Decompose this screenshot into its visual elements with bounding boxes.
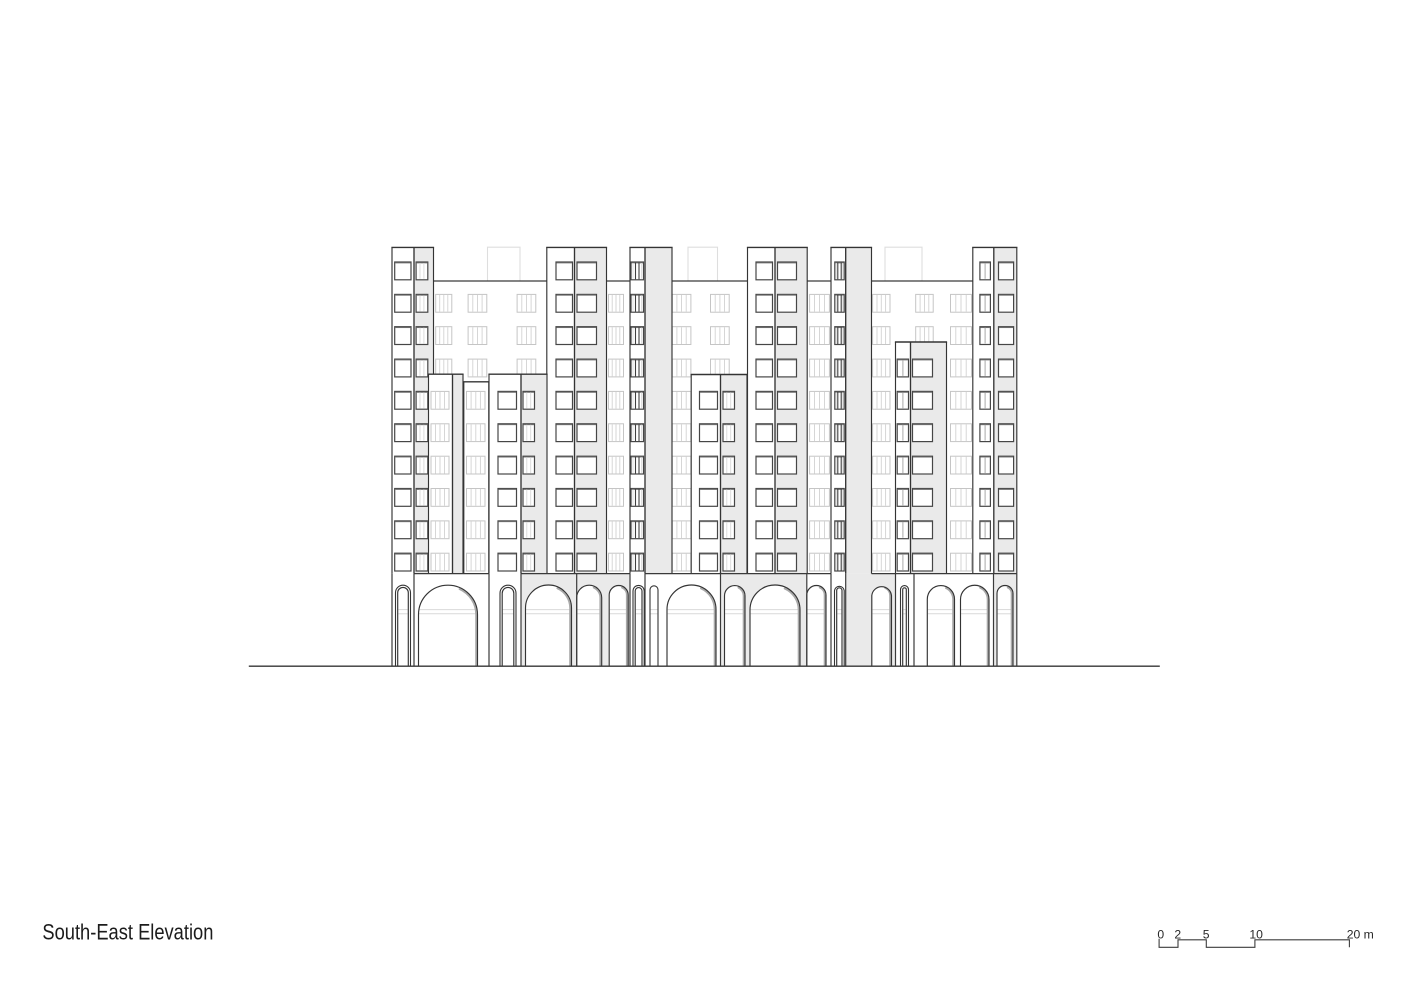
- svg-text:0: 0: [1157, 927, 1164, 941]
- svg-text:South-East Elevation: South-East Elevation: [42, 920, 213, 945]
- svg-text:20 m: 20 m: [1347, 927, 1374, 941]
- svg-text:2: 2: [1174, 927, 1181, 941]
- svg-text:10: 10: [1249, 927, 1263, 941]
- svg-text:5: 5: [1203, 927, 1210, 941]
